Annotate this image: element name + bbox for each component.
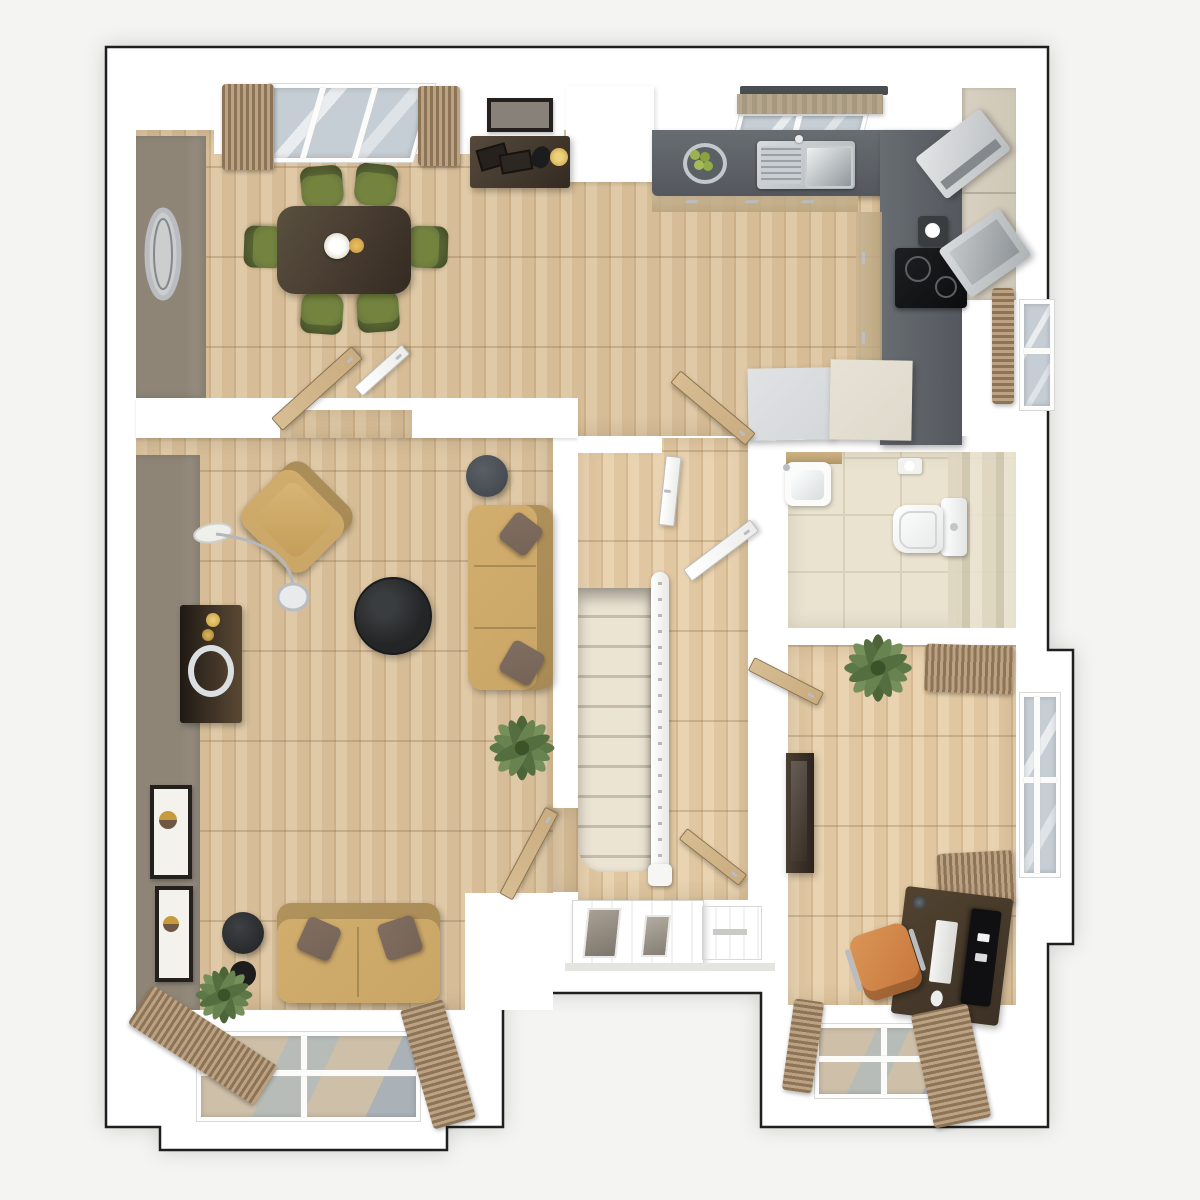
- study-curtain-top: [924, 643, 1014, 694]
- island-unit-grey: [747, 367, 832, 440]
- table-centerpiece-tray: [349, 238, 364, 253]
- porch-corner-wall: [465, 893, 553, 1010]
- coffee-table: [354, 577, 432, 655]
- armchair-seat: [253, 479, 335, 561]
- staircase: [578, 588, 652, 872]
- monitor-glyph: [975, 953, 988, 962]
- apples: [690, 150, 700, 160]
- dining-chair: [405, 225, 448, 268]
- dining-accent-wall: [136, 136, 206, 398]
- kitchen-side-window: [1020, 300, 1054, 410]
- side-table: [466, 455, 508, 497]
- wc-basin: [785, 462, 831, 506]
- hob-ring: [935, 276, 957, 298]
- side-table: [222, 912, 264, 954]
- speaker-ring: [188, 645, 234, 697]
- cabinet-handle: [862, 252, 865, 264]
- basin-tap: [783, 464, 790, 471]
- wall-pier-top-centre: [566, 86, 654, 182]
- front-door: [572, 900, 704, 964]
- hall-top-step: [578, 438, 662, 453]
- coffee-cup: [925, 223, 940, 238]
- sofa-cushion: [497, 638, 546, 687]
- gold-disc: [202, 629, 214, 641]
- media-sideboard: [180, 605, 242, 723]
- dining-curtain-right: [418, 86, 460, 166]
- front-threshold: [565, 963, 775, 971]
- cabinet-handle: [801, 200, 815, 203]
- toilet-cistern: [941, 498, 967, 556]
- fruit-bowl: [683, 143, 727, 184]
- dining-chair: [356, 289, 401, 334]
- cabinet-glass: [791, 761, 807, 861]
- three-seat-sofa: [468, 505, 553, 690]
- kitchen-roller-blind: [737, 94, 883, 114]
- banister: [651, 572, 669, 882]
- cabinet-seam: [962, 192, 1016, 194]
- toilet-roll: [903, 460, 916, 472]
- sofa-cushion: [376, 914, 424, 962]
- dining-window: [247, 84, 435, 162]
- dining-chair: [300, 291, 345, 336]
- toilet-seat-line: [899, 511, 937, 549]
- photo-frame: [499, 149, 534, 174]
- console-table: [470, 136, 570, 188]
- framed-print: [155, 886, 193, 982]
- sidelight-bar: [713, 929, 747, 935]
- hob-ring: [905, 256, 931, 282]
- floor-plan-stage: [0, 0, 1200, 1200]
- dining-chair: [353, 162, 399, 208]
- window-mullion: [1024, 777, 1056, 783]
- newel-post: [648, 864, 672, 886]
- window-mullion: [352, 88, 378, 158]
- table-centerpiece-flowers: [324, 233, 350, 259]
- sofa-cushion: [295, 915, 343, 963]
- sofa-cushion: [497, 510, 545, 558]
- window-mullion: [300, 88, 326, 158]
- door-glazing: [582, 908, 621, 958]
- sink-tap: [795, 135, 803, 143]
- window-mullion: [301, 1036, 307, 1117]
- gold-disc: [206, 613, 220, 627]
- window-mullion: [1024, 348, 1050, 354]
- study-side-window: [1020, 693, 1060, 877]
- balusters: [658, 582, 662, 872]
- cabinet-handle: [685, 200, 699, 203]
- window-mullion: [1034, 697, 1040, 873]
- kitchen-cabinet-fronts: [652, 196, 858, 212]
- print-art: [163, 916, 179, 932]
- door-glazing: [641, 915, 671, 957]
- framed-print: [150, 785, 192, 879]
- dining-curtain-left: [222, 84, 274, 170]
- gold-dish: [550, 148, 568, 166]
- coffee-machine: [918, 216, 948, 246]
- sofa-seam: [474, 627, 536, 629]
- sink-unit: [757, 141, 855, 189]
- cabinet-handle: [745, 200, 759, 203]
- living-hall-door-gap: [553, 808, 578, 892]
- island-unit-cream: [829, 359, 912, 440]
- sink-drainer: [761, 146, 801, 184]
- front-door-sidelight: [702, 906, 762, 960]
- toilet-bowl: [893, 505, 943, 553]
- dining-chair: [299, 164, 345, 210]
- monitor-glyph: [977, 933, 990, 942]
- toilet-roll-holder: [898, 458, 922, 474]
- kitchen-side-blind: [992, 288, 1014, 404]
- framed-picture: [487, 98, 553, 132]
- two-seat-sofa: [277, 903, 440, 1003]
- sofa-seam: [474, 565, 536, 567]
- cabinet-handle: [862, 332, 865, 344]
- study-cabinet: [786, 753, 814, 873]
- basin-bowl: [791, 470, 824, 500]
- sink-basin: [805, 146, 853, 188]
- sofa-seam: [357, 927, 359, 997]
- flush-button: [950, 523, 958, 531]
- print-art: [159, 811, 177, 829]
